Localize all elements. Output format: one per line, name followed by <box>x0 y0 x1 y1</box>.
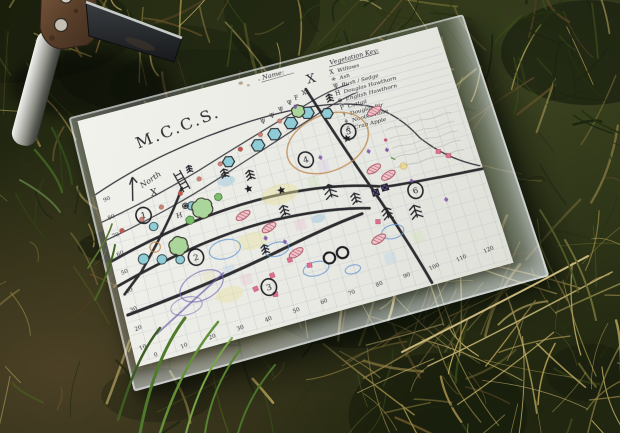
rust-spot <box>49 35 55 41</box>
rust-spot <box>74 9 78 13</box>
pink-square-symbol <box>436 149 441 154</box>
grass-blade <box>399 0 419 29</box>
grass-blade <box>554 419 572 433</box>
grass-blade <box>587 275 609 286</box>
willow-x-symbol-large: X <box>305 70 318 86</box>
grass-blade <box>253 379 273 403</box>
crossed-square-symbol <box>372 189 380 197</box>
grass-blade <box>213 362 232 433</box>
north-arrow <box>127 176 141 201</box>
rush-symbol: Ψ <box>278 107 285 114</box>
grass-blade <box>571 263 581 355</box>
grass-blade <box>605 295 620 300</box>
map-title: M.C.C.S. <box>133 103 223 152</box>
willow-x-symbol: X <box>149 186 159 198</box>
grass-blade <box>5 366 20 382</box>
grass-blade <box>539 133 555 153</box>
grass-blade <box>70 361 80 416</box>
rush-symbol: Ψ <box>260 119 267 126</box>
photo-scene: North M.C.C.S. Name: X Vegetation Key: X… <box>0 0 620 433</box>
grass-blade <box>556 231 595 240</box>
grass-blade <box>318 0 368 44</box>
name-label: Name: <box>260 69 285 82</box>
grass-blade <box>74 267 109 324</box>
tool-bolt <box>55 19 68 32</box>
grass-blade <box>540 164 566 204</box>
grass-shadow-patch <box>546 344 620 401</box>
grass-blade <box>57 388 62 410</box>
grass-blade <box>0 376 10 433</box>
crossed-square-symbol <box>381 184 389 192</box>
grass-blade <box>11 292 31 335</box>
grass-blade <box>499 336 570 352</box>
fir-letter-mark: F <box>294 96 300 103</box>
key-item-symbol: ✳ <box>330 76 337 84</box>
north-label: North <box>137 169 163 190</box>
grass-blade <box>364 0 402 6</box>
grass-blade <box>0 419 21 433</box>
y-axis-label: 90 <box>103 195 112 203</box>
grass-blade <box>153 422 179 433</box>
pink-square-symbol <box>446 153 451 158</box>
pink-square-symbol <box>307 263 312 268</box>
grass-blade <box>333 0 341 20</box>
pink-square-symbol <box>376 219 381 223</box>
dirt-smudges <box>238 77 261 89</box>
grass-blade <box>592 421 620 433</box>
rush-symbol: Ψ <box>287 101 294 108</box>
grass-blade <box>30 242 38 262</box>
grass-blade <box>556 264 620 313</box>
grass-blade <box>495 7 498 52</box>
grass-blade <box>0 290 19 312</box>
grass-blade <box>16 194 45 239</box>
grass-blade <box>13 383 43 402</box>
grass-blade <box>517 0 527 4</box>
grass-blade <box>557 243 620 246</box>
grass-blade <box>0 282 6 310</box>
pink-square-symbol <box>287 257 293 263</box>
douglas-fir-symbol <box>185 165 193 173</box>
grass-blade <box>603 143 620 183</box>
key-title: Vegetation Key: <box>329 46 380 66</box>
grass-blade <box>593 225 596 286</box>
